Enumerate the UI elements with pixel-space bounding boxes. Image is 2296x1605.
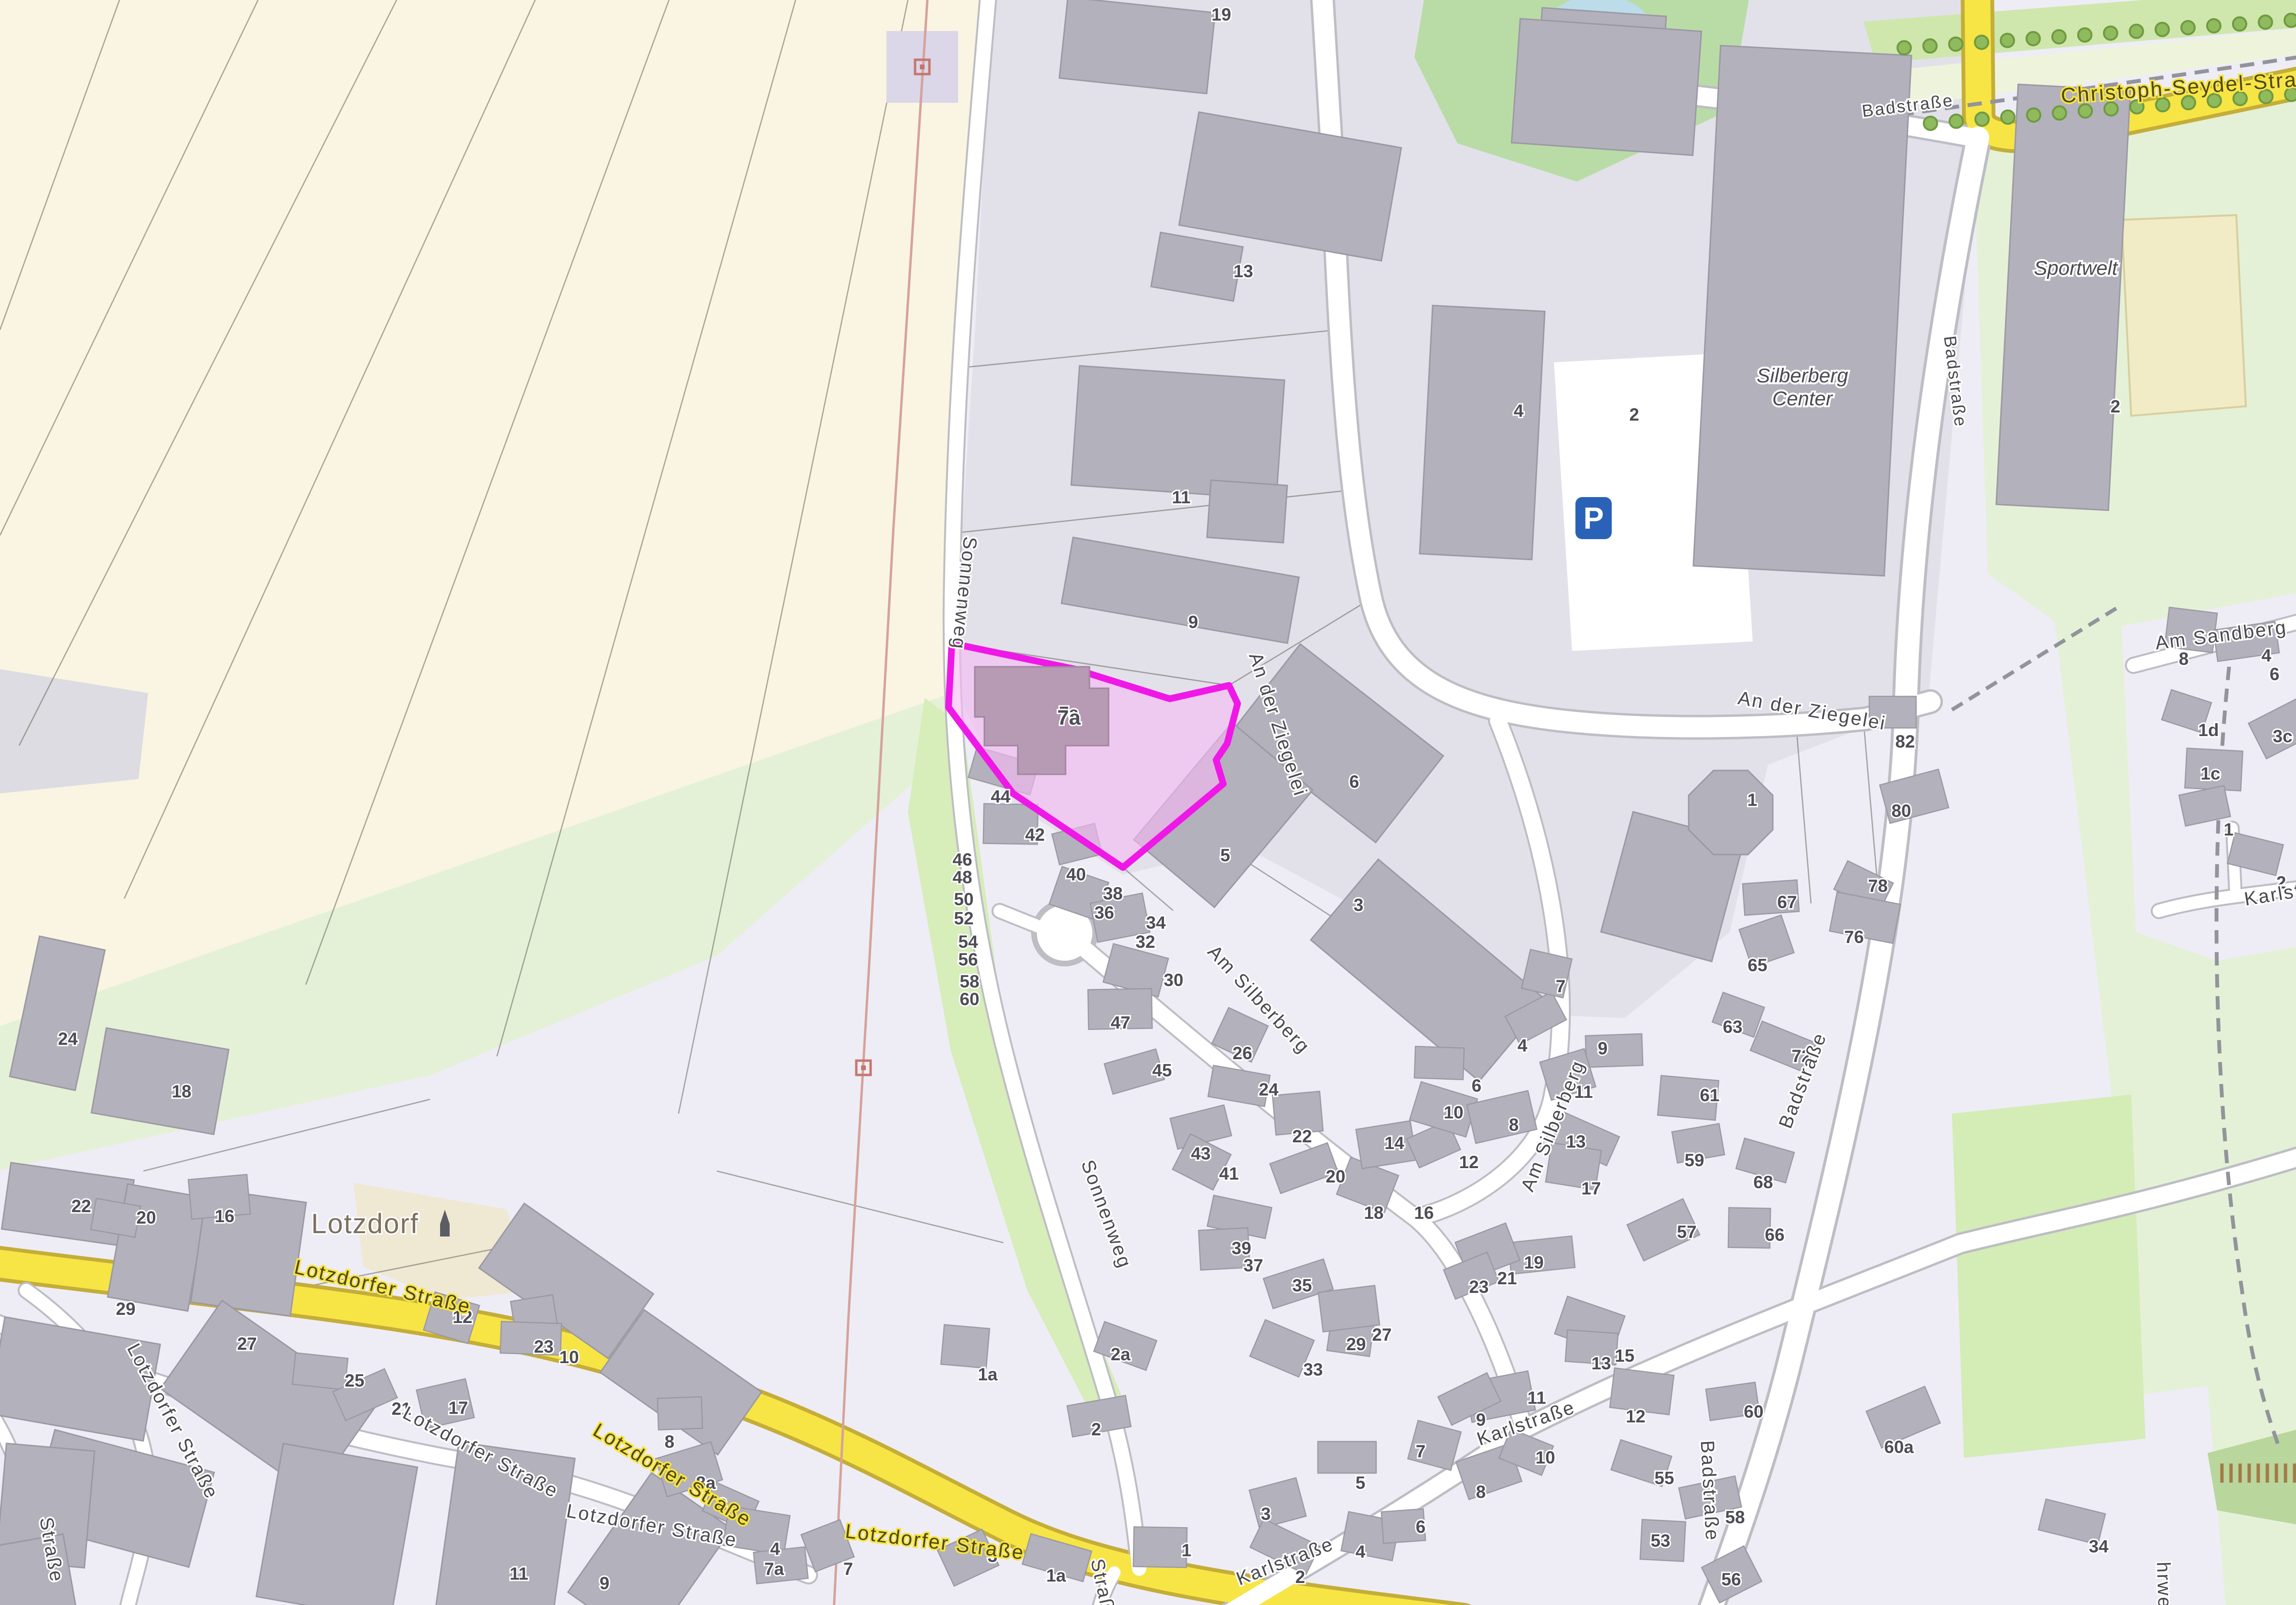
house-number-label: 50 — [954, 889, 973, 909]
house-number-label: 22 — [1292, 1127, 1312, 1146]
house-number-label: 20 — [1326, 1167, 1345, 1186]
place-name-label: Lotzdorf — [311, 1208, 419, 1239]
house-number-label: 7a — [764, 1559, 784, 1579]
house-number-label: 4 — [770, 1539, 780, 1559]
house-number-label: 17 — [448, 1398, 468, 1418]
house-number-label: 24 — [1259, 1080, 1279, 1099]
house-number-label: 35 — [1292, 1276, 1312, 1295]
house-number-label: 29 — [1346, 1334, 1366, 1354]
tree-icon — [2207, 19, 2221, 33]
house-number-label: 6 — [2270, 664, 2280, 684]
house-number-label: 5 — [1220, 846, 1230, 865]
house-number-label: 80 — [1891, 801, 1911, 821]
house-number-label: 12 — [1626, 1407, 1645, 1426]
house — [1585, 1034, 1643, 1067]
house-number-label: 2 — [2111, 397, 2121, 416]
house-number-label: 63 — [1723, 1017, 1742, 1037]
house-number-label: 67 — [1777, 892, 1797, 912]
house — [292, 1353, 348, 1389]
house-number-label: 43 — [1191, 1144, 1210, 1163]
house-number-label: 20 — [136, 1208, 156, 1227]
house-number-label: 34 — [1146, 913, 1166, 933]
house-number-label: 46 — [952, 850, 972, 869]
building — [1511, 19, 1701, 155]
house-number-label: 10 — [559, 1347, 579, 1367]
house-number-label: 1 — [2224, 820, 2234, 839]
house-number-label: 66 — [1765, 1225, 1784, 1245]
house-number-label: 9 — [600, 1573, 610, 1593]
house-number-label: 37 — [1243, 1256, 1263, 1275]
house-number-label: 14 — [1384, 1133, 1404, 1153]
house-number-label: 2 — [1295, 1567, 1305, 1587]
house-number-label: 44 — [991, 787, 1011, 806]
house — [1318, 1442, 1376, 1473]
tree-icon — [2052, 30, 2066, 43]
house-number-label: 36 — [1094, 903, 1114, 922]
house-number-label: 6 — [1416, 1517, 1426, 1537]
house-number-label: 2 — [1629, 405, 1639, 424]
house-number-label: 4 — [2262, 646, 2272, 665]
house-number-label: 4 — [1518, 1036, 1528, 1055]
house-number-label: 18 — [1364, 1203, 1383, 1223]
tree-icon — [2259, 15, 2272, 29]
map-svg: P 19131194227a65314442404648505254565860… — [0, 0, 2296, 1605]
house-number-label: 18 — [172, 1082, 191, 1101]
tree-icon — [1975, 35, 1988, 49]
house-number-label: 38 — [1103, 884, 1122, 903]
house-number-label: 1d — [2198, 720, 2219, 740]
house-number-label: 58 — [959, 972, 979, 991]
house-number-label: 60 — [959, 989, 979, 1009]
house-number-label: 21 — [1497, 1269, 1517, 1288]
house-number-label: 7 — [1556, 976, 1566, 996]
house-number-label: 53 — [1650, 1531, 1670, 1551]
house-number-label: 27 — [1372, 1325, 1391, 1345]
building — [1059, 0, 1215, 94]
house-number-label: 6 — [1472, 1076, 1482, 1095]
house — [658, 1397, 702, 1430]
house-number-label: 55 — [1654, 1468, 1674, 1488]
tree-icon — [1950, 115, 1963, 128]
house-number-label: 30 — [1164, 970, 1183, 990]
house-number-label: 78 — [1868, 876, 1887, 896]
map-canvas[interactable]: P 19131194227a65314442404648505254565860… — [0, 0, 2296, 1605]
house-number-label: 60a — [1884, 1437, 1914, 1457]
building — [1693, 45, 1911, 575]
house-number-label: 16 — [215, 1206, 234, 1226]
house-number-label: 58 — [1725, 1507, 1745, 1527]
house-number-label: 8 — [665, 1432, 675, 1452]
house — [1414, 1046, 1464, 1080]
tree-icon — [2053, 106, 2066, 119]
building — [1996, 84, 2131, 510]
house-number-label: 3 — [1261, 1504, 1271, 1524]
tree-icon — [1924, 117, 1937, 130]
house-number-label: 65 — [1747, 955, 1767, 975]
house-number-label: 10 — [1444, 1103, 1463, 1122]
house-number-label: 1 — [1747, 790, 1757, 810]
house-number-label: 16 — [1414, 1203, 1434, 1223]
house-number-label: 29 — [116, 1299, 135, 1319]
tree-icon — [2130, 24, 2143, 38]
house-number-label: 27 — [237, 1334, 257, 1354]
house-number-label: 48 — [952, 868, 972, 887]
tree-icon — [1949, 37, 1962, 51]
house-number-label: 1a — [978, 1365, 998, 1384]
parking-icon-letter: P — [1584, 501, 1604, 535]
house-number-label: 7 — [843, 1559, 853, 1579]
tree-icon — [2285, 13, 2296, 27]
tree-icon — [2001, 34, 2014, 47]
green-rect — [1952, 1095, 2145, 1458]
tree-icon — [2233, 17, 2246, 31]
house — [1318, 1286, 1380, 1332]
house-number-label: 61 — [1700, 1085, 1719, 1105]
tree-icon — [2104, 26, 2117, 40]
house-number-label: 23 — [534, 1337, 553, 1356]
house-number-label: 3c — [2273, 727, 2292, 746]
house-number-label: 24 — [58, 1029, 78, 1049]
house-number-label: 8 — [1509, 1115, 1519, 1135]
house-number-label: 40 — [1066, 865, 1086, 884]
house-number-label: 2 — [1091, 1420, 1101, 1439]
house-number-label: 13 — [1591, 1354, 1611, 1373]
tree-icon — [1897, 41, 1911, 54]
building — [1071, 366, 1284, 499]
house-number-label: 68 — [1753, 1172, 1773, 1192]
tree-icon — [2001, 110, 2015, 124]
house-number-label: 23 — [1469, 1277, 1488, 1297]
house-number-label: 59 — [1684, 1150, 1704, 1170]
tree-icon — [2078, 28, 2091, 42]
house-number-label: 5 — [1356, 1473, 1366, 1493]
house-number-label: 47 — [1110, 1013, 1130, 1032]
house-number-label: 15 — [1615, 1346, 1634, 1366]
building-name-label: Sportwelt — [2034, 257, 2118, 279]
power-pylon-icon — [920, 65, 925, 69]
house-number-label: 33 — [1303, 1360, 1323, 1379]
street-name-label: hrweg — [2153, 1562, 2176, 1605]
building — [256, 1443, 417, 1605]
house-number-label: 56 — [1721, 1570, 1741, 1589]
house-number-label: 11 — [1172, 488, 1190, 507]
building — [1207, 480, 1287, 543]
tree-icon — [2181, 21, 2195, 34]
house-number-label: 32 — [1135, 932, 1155, 952]
house-number-label: 56 — [958, 950, 978, 969]
house-number-label: 76 — [1844, 927, 1864, 947]
house-number-label: 22 — [71, 1196, 91, 1216]
tree-icon — [2027, 108, 2040, 122]
house-number-label: 9 — [1188, 612, 1198, 632]
house-number-label: 41 — [1219, 1164, 1239, 1183]
house-number-label: 6 — [1349, 772, 1359, 792]
sports-pitch — [2122, 215, 2246, 416]
house-number-label: 25 — [345, 1371, 364, 1390]
house — [1728, 1208, 1770, 1248]
house-number-label: 13 — [1233, 261, 1253, 281]
tree-icon — [1923, 39, 1937, 53]
house-number-label: 39 — [1231, 1238, 1251, 1258]
house-number-label: 45 — [1152, 1061, 1172, 1080]
house-number-label: 9 — [1598, 1039, 1608, 1058]
tree-icon — [2156, 23, 2169, 36]
house-number-label: 82 — [1895, 732, 1915, 751]
tree-icon — [1975, 112, 1989, 126]
house-number-label: 54 — [958, 932, 978, 952]
house-number-label: 3 — [1354, 895, 1364, 915]
house-number-label: 11 — [1527, 1388, 1546, 1408]
house-number-label: 4 — [1514, 401, 1524, 421]
house-number-label: 19 — [1524, 1253, 1543, 1272]
house — [1133, 1527, 1187, 1568]
house-number-label: 1c — [2200, 764, 2220, 783]
tree-icon — [2027, 32, 2040, 45]
house-number-label: 13 — [1566, 1132, 1585, 1151]
house-number-label: 11 — [509, 1564, 528, 1583]
house-number-label: 2a — [1110, 1345, 1131, 1364]
house-number-label: 60 — [1744, 1402, 1763, 1421]
house-number-label: 4 — [1356, 1542, 1366, 1562]
house-number-label: 10 — [1535, 1448, 1555, 1467]
house-number-label: 26 — [1232, 1043, 1252, 1063]
house-number-label: 1a — [1046, 1566, 1066, 1585]
power-pylon-icon — [861, 1065, 866, 1070]
house-number-label: 42 — [1025, 825, 1045, 845]
house-number-label: 57 — [1677, 1222, 1696, 1242]
house-number-label: 8 — [1476, 1482, 1486, 1502]
house-number-label: 19 — [1211, 5, 1231, 24]
highlighted-parcel-label: 7a — [1057, 706, 1081, 729]
house-number-label: 17 — [1581, 1179, 1601, 1198]
house-number-label: 34 — [2089, 1537, 2109, 1556]
house-number-label: 52 — [954, 909, 973, 928]
building-octagon — [1689, 770, 1773, 855]
house-number-label: 1 — [1182, 1540, 1192, 1560]
house-number-label: 7 — [1416, 1442, 1426, 1461]
house-number-label: 12 — [1459, 1152, 1478, 1172]
house — [941, 1325, 990, 1368]
building — [1420, 305, 1545, 560]
house-number-label: 8 — [2179, 649, 2189, 669]
